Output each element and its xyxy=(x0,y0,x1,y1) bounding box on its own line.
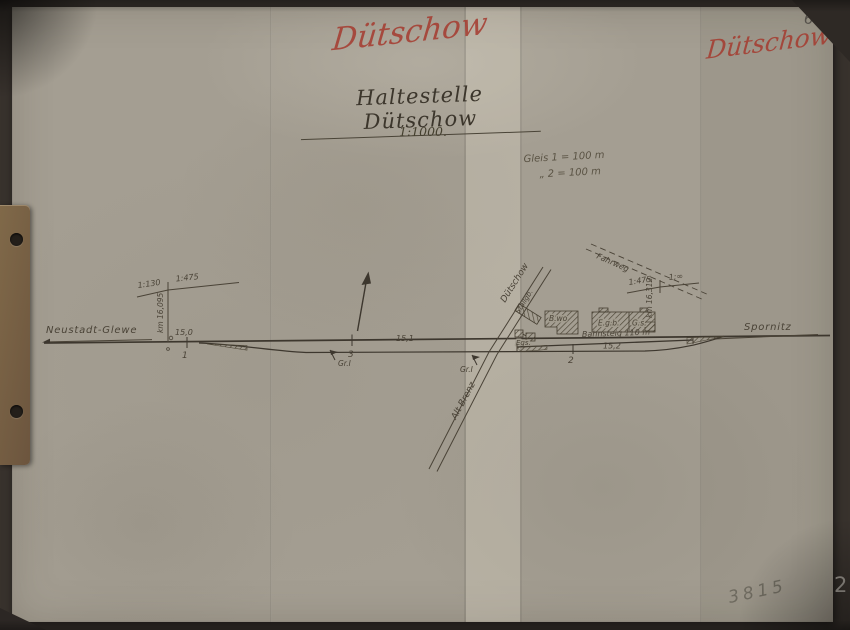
punch-hole xyxy=(10,405,23,418)
building-label-goods-shed: G.s. xyxy=(632,319,647,328)
binder-tab xyxy=(0,205,30,465)
distance-label: 15,0 xyxy=(175,328,193,337)
road-label-crossing: Alt Brenz xyxy=(449,380,478,422)
boundary-mark-label: Gr.I xyxy=(338,359,352,368)
boundary-mark-label: Gr.I xyxy=(460,365,474,374)
gradient-marker-left: 1:130 1:475 xyxy=(137,272,239,297)
building-label-dwelling: B.wo xyxy=(549,314,568,323)
turnout-left-wedge xyxy=(207,344,247,350)
gradient-value: 1:475 xyxy=(175,272,199,283)
corner-number: 2 xyxy=(834,573,847,597)
photo-backdrop: 1 3 2 Gr.I Gr.I 15,0 15,1 15,2 Neustadt-… xyxy=(0,0,850,630)
km-post-left: km 16,095 xyxy=(156,290,168,342)
survey-point xyxy=(167,348,170,351)
destination-right: Spornitz xyxy=(744,322,792,333)
distance-label: 15,1 xyxy=(396,334,414,343)
outbuilding xyxy=(515,330,523,337)
gradient-value: 1:130 xyxy=(137,278,161,290)
destination-left: Neustadt-Glewe xyxy=(46,325,137,336)
direction-arrow-left xyxy=(42,339,50,343)
building-label-station: E.g.b. xyxy=(598,319,619,328)
station-annex xyxy=(640,308,647,312)
road-label-farm: Fahrweg xyxy=(595,252,630,274)
track-length-note: Gleis 1 = 100 m „ 2 = 100 m xyxy=(523,148,605,183)
survey-point xyxy=(169,336,173,340)
switch-number-1: 1 xyxy=(182,351,188,361)
km-value: km 16,095 xyxy=(156,292,165,333)
station-annex xyxy=(599,308,608,312)
switch-number-2: 2 xyxy=(568,356,574,366)
road-crossing xyxy=(429,267,551,472)
north-arrow xyxy=(358,272,372,332)
plan-scale: 1:1000. xyxy=(378,124,468,139)
building-label-outbuilding: Egs. xyxy=(516,339,531,347)
punch-hole xyxy=(10,233,23,246)
